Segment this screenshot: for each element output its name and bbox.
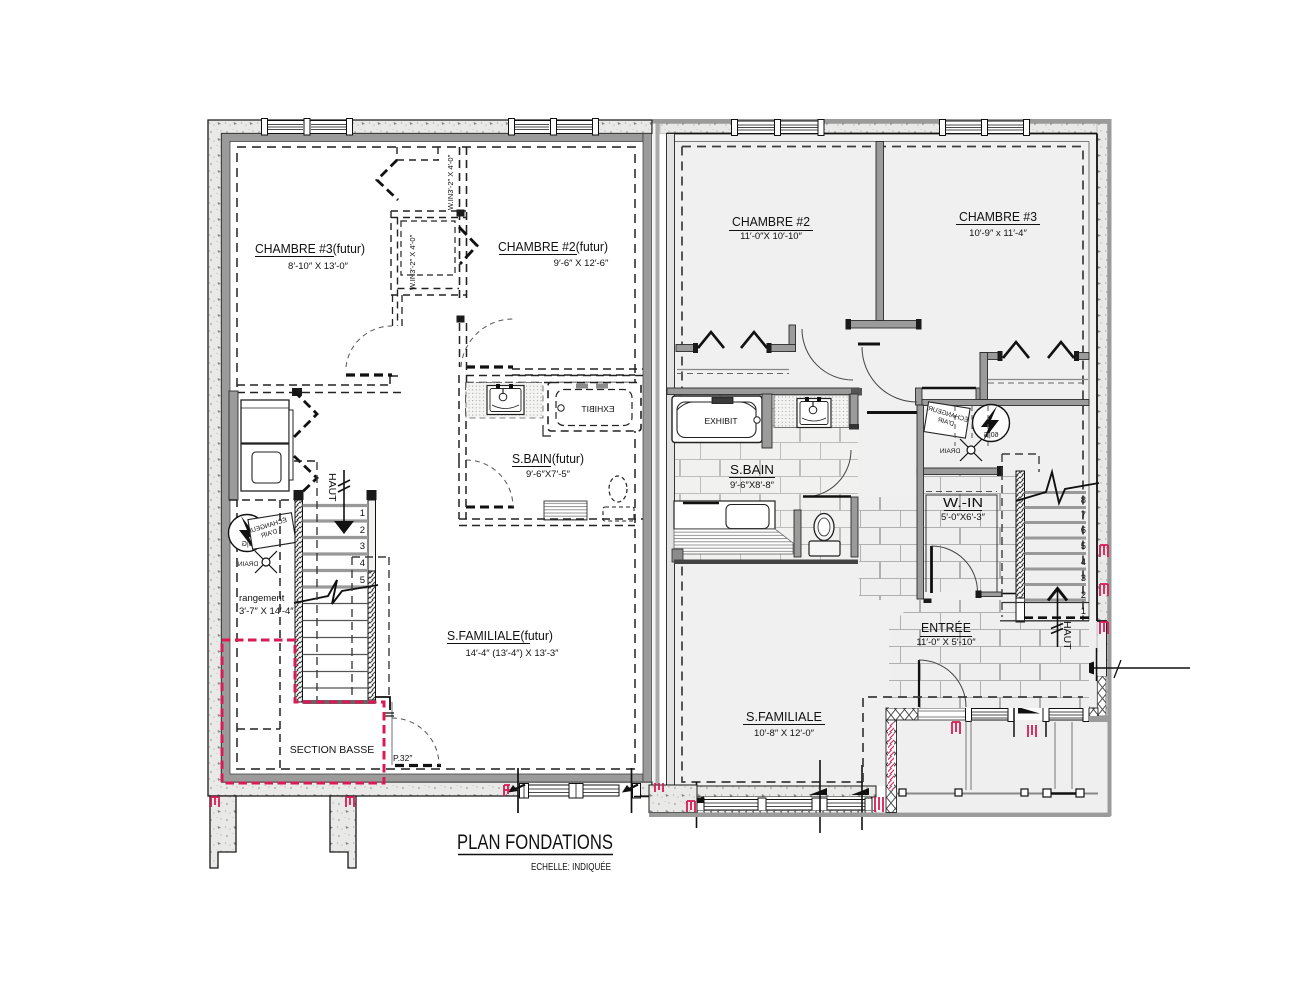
svg-text:11′-0″X 10′-10″: 11′-0″X 10′-10″ [740,231,803,242]
svg-text:1: 1 [1081,606,1086,617]
svg-text:W.IN3′-2″ X 4′-0″: W.IN3′-2″ X 4′-0″ [446,154,455,210]
svg-text:ENTRÉE: ENTRÉE [921,620,971,635]
svg-text:EXHIBIT: EXHIBIT [581,404,614,414]
svg-text:CHAMBRE #3: CHAMBRE #3 [959,209,1037,224]
svg-text:S.FAMILIALE: S.FAMILIALE [746,709,822,724]
svg-text:9′-6″X7′-5″: 9′-6″X7′-5″ [526,469,571,480]
svg-text:W.IN3′-2″ X 4′-0″: W.IN3′-2″ X 4′-0″ [408,234,417,290]
svg-text:8′-10″ X 13′-0″: 8′-10″ X 13′-0″ [288,261,349,272]
svg-text:6: 6 [1081,525,1086,536]
svg-text:S.BAIN(futur): S.BAIN(futur) [512,451,584,466]
svg-text:7: 7 [1081,510,1086,521]
svg-text:5: 5 [1081,541,1086,552]
svg-text:9′-6″X8′-8″: 9′-6″X8′-8″ [730,480,775,491]
svg-text:4: 4 [360,558,365,569]
svg-text:2: 2 [360,525,365,536]
svg-text:5: 5 [360,575,365,586]
svg-text:11′-0″ X 5′-10″: 11′-0″ X 5′-10″ [916,637,976,648]
svg-text:DRAIN: DRAIN [238,561,259,568]
svg-text:10′-9″ x 11′-4″: 10′-9″ x 11′-4″ [969,228,1027,239]
svg-text:2: 2 [1081,590,1086,601]
svg-text:CHAMBRE #3(futur): CHAMBRE #3(futur) [255,241,365,256]
svg-text:1: 1 [360,508,365,519]
svg-text:CHAMBRE #2(futur): CHAMBRE #2(futur) [498,239,608,254]
svg-text:EXHIBIT: EXHIBIT [704,416,737,426]
svg-text:CHAMBRE #2: CHAMBRE #2 [732,214,810,229]
svg-text:3′-7″ X 14′-4″: 3′-7″ X 14′-4″ [239,606,294,617]
svg-text:10′-8″ X 12′-0″: 10′-8″ X 12′-0″ [754,728,815,739]
svg-text:SECTION BASSE: SECTION BASSE [290,744,375,756]
svg-text:3: 3 [360,541,365,552]
svg-text:HAUT: HAUT [326,473,338,502]
svg-text:ECHELLE: INDIQUÉE: ECHELLE: INDIQUÉE [531,860,611,873]
svg-text:HAUT: HAUT [1061,621,1073,650]
svg-text:60|G: 60|G [983,432,998,439]
svg-text:S.FAMILIALE(futur): S.FAMILIALE(futur) [447,628,553,643]
svg-text:PLAN FONDATIONS: PLAN FONDATIONS [457,830,613,854]
svg-text:9′-6″ X 12′-6″: 9′-6″ X 12′-6″ [554,258,609,269]
svg-text:S.BAIN: S.BAIN [730,462,774,477]
svg-text:3: 3 [1081,573,1086,584]
svg-text:14′-4″ (13′-4″) X 13′-3″: 14′-4″ (13′-4″) X 13′-3″ [465,648,559,659]
svg-text:P.32″: P.32″ [393,753,412,763]
svg-text:8: 8 [1081,495,1086,506]
svg-text:W.-IN: W.-IN [943,495,983,510]
svg-text:rangement: rangement [239,593,285,604]
svg-text:DRAIN: DRAIN [940,448,961,455]
svg-text:4: 4 [1081,557,1086,568]
svg-text:5′-0″X6′-3″: 5′-0″X6′-3″ [941,512,986,523]
